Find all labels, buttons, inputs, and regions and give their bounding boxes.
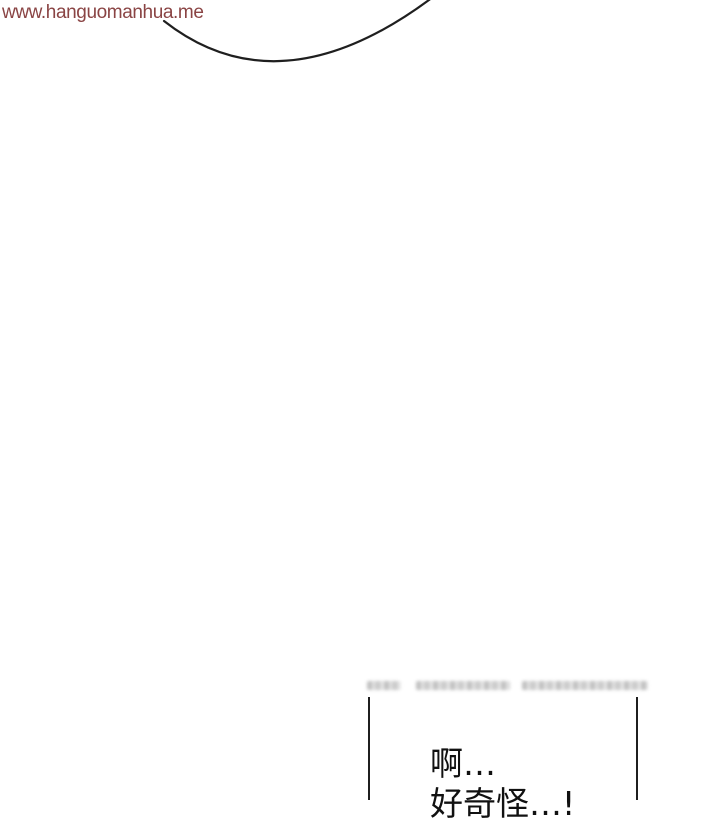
speech-bubble-arc xyxy=(0,0,720,70)
blurred-text-blob xyxy=(367,681,401,690)
comic-page: { "page": { "background_color": "#ffffff… xyxy=(0,0,720,800)
blurred-text-blob xyxy=(522,681,648,690)
bubble-arc-path xyxy=(164,0,433,61)
dialogue-line-2: 好奇怪…! xyxy=(430,784,640,824)
blurred-watermark-strip xyxy=(364,677,648,693)
dialogue-line-1: 啊… xyxy=(430,744,640,784)
blurred-text-blob xyxy=(416,681,510,690)
dialogue-text: 啊… 好奇怪…! xyxy=(430,744,640,824)
